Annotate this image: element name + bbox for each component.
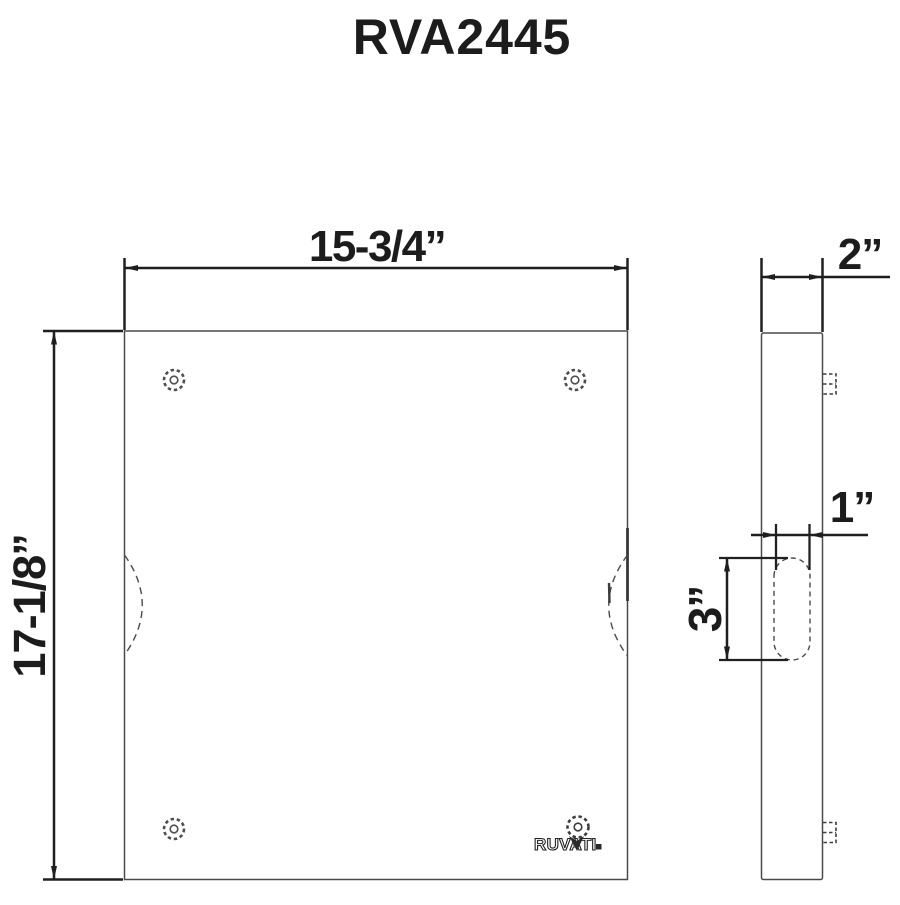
svg-text:3”: 3”: [679, 586, 731, 633]
svg-text:2”: 2”: [838, 230, 882, 279]
svg-text:15-3/4”: 15-3/4”: [309, 222, 445, 271]
svg-text:17-1/8”: 17-1/8”: [4, 534, 55, 677]
svg-text:RUVATI: RUVATI: [534, 835, 597, 854]
svg-text:RVA2445: RVA2445: [353, 9, 571, 65]
svg-text:1”: 1”: [830, 483, 874, 532]
